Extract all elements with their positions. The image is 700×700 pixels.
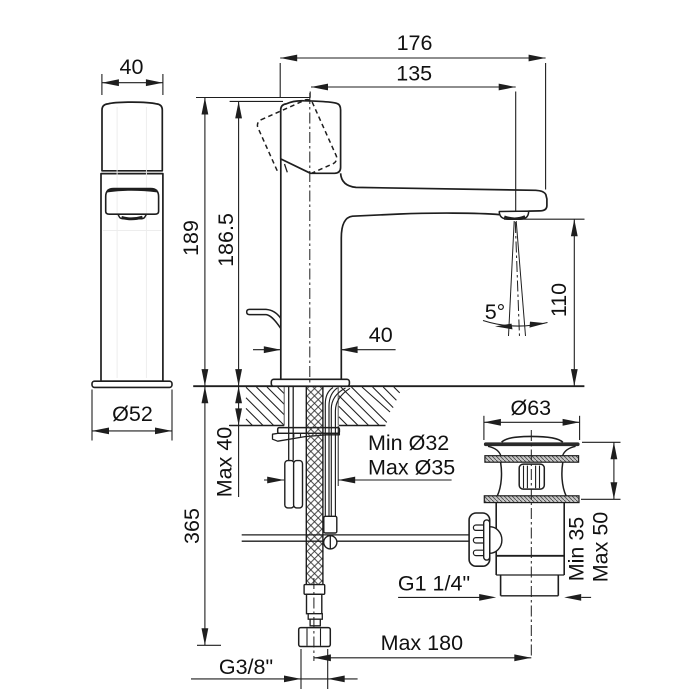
svg-text:Max Ø35: Max Ø35 <box>368 456 455 480</box>
svg-text:135: 135 <box>396 62 432 86</box>
svg-text:365: 365 <box>180 508 204 544</box>
svg-text:Max 180: Max 180 <box>381 631 464 655</box>
svg-text:G3/8": G3/8" <box>219 655 273 679</box>
svg-text:Min 35: Min 35 <box>565 517 589 582</box>
svg-text:Max 40: Max 40 <box>213 427 237 498</box>
svg-text:186.5: 186.5 <box>214 213 238 267</box>
svg-text:5°: 5° <box>485 300 506 324</box>
svg-text:Ø63: Ø63 <box>510 396 551 420</box>
svg-text:Max 50: Max 50 <box>588 512 612 583</box>
svg-text:40: 40 <box>120 55 144 79</box>
svg-text:G1 1/4": G1 1/4" <box>398 572 470 596</box>
svg-text:Ø52: Ø52 <box>112 402 153 426</box>
svg-text:110: 110 <box>547 283 571 317</box>
svg-text:Min Ø32: Min Ø32 <box>368 431 449 455</box>
svg-text:40: 40 <box>369 323 393 347</box>
svg-text:176: 176 <box>397 31 433 55</box>
svg-text:189: 189 <box>179 220 203 256</box>
